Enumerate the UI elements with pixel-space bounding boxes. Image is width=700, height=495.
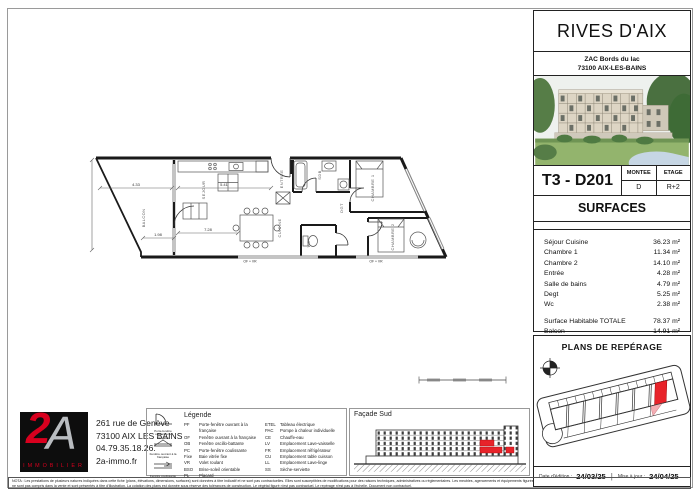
north-compass-icon: [540, 358, 560, 378]
facade-highlight-3: [506, 447, 514, 453]
dimension-labels: 4.33 5.41 1.98 7.28: [132, 182, 229, 237]
agency-logo: 2 A IMMOBILIER: [20, 412, 88, 472]
unit-row: T3 - D201 MONTEE ETAGE D R+2: [533, 165, 691, 196]
surface-row: Séjour Cuisine36.23 m²: [544, 238, 680, 248]
legend-symbol-pc: Fenêtre coulissante: [149, 457, 177, 478]
room-sdb: SDB: [317, 170, 322, 179]
room-sejour: SEJOUR: [201, 181, 206, 200]
facade-highlight-2: [480, 447, 502, 453]
reperage-title: PLANS DE REPÉRAGE: [534, 342, 690, 352]
surface-value: 5.25 m²: [657, 290, 680, 300]
facade-drawing: [352, 420, 528, 475]
montee-label: MONTEE: [622, 166, 657, 180]
etage-label: ETAGE: [657, 166, 691, 180]
surface-label: Wc: [544, 300, 554, 310]
window-labels: OF + VR OF + VR: [243, 260, 383, 264]
disclaimer-line2: ne sont pas compris dans la vente et son…: [12, 484, 687, 489]
surface-label: Entrée: [544, 269, 564, 279]
surfaces-title: SURFACES: [578, 201, 646, 215]
surface-row: Degt5.25 m²: [544, 290, 680, 300]
surface-label: Degt: [544, 290, 558, 300]
facade-highlight-1: [480, 440, 494, 446]
unit-code: T3 - D201: [534, 166, 622, 195]
surface-row: Wc2.38 m²: [544, 300, 680, 310]
dim-7-28: 7.28: [204, 227, 213, 232]
surface-row: Entrée4.28 m²: [544, 269, 680, 279]
unit-grid: MONTEE ETAGE D R+2: [622, 166, 690, 195]
project-address-box: ZAC Bords du lac 73100 AIX-LES-BAINS: [533, 51, 691, 76]
room-wc: WC: [307, 241, 311, 248]
room-balcon: BALCON: [141, 209, 146, 228]
surface-value: 4.79 m²: [657, 280, 680, 290]
room-chambre1: CHAMBRE 1: [370, 174, 375, 201]
surface-label: Chambre 1: [544, 248, 578, 258]
surface-value: 36.23 m²: [653, 238, 680, 248]
surface-total-row: Surface Habitable TOTALE78.37 m²: [544, 317, 680, 327]
legend-column-1: PFPorte-fenêtre ouvrant à la française O…: [184, 422, 262, 480]
surface-label: Séjour Cuisine: [544, 238, 588, 248]
balcony-walls: [96, 158, 174, 257]
surface-label: Chambre 2: [544, 259, 578, 269]
logo-caption: IMMOBILIER: [20, 463, 88, 469]
legend-label: Sèche-serviette: [280, 467, 310, 473]
surface-row: Chambre 111.34 m²: [544, 248, 680, 258]
window-label-1: OF + VR: [243, 260, 257, 264]
floor-plan: 4.33 5.41 1.98 7.28 OF + VR OF + VR BALC…: [88, 148, 460, 344]
footer-disclaimer: NOTA : Les prestations de plusieurs natu…: [8, 477, 691, 489]
montee-value: D: [622, 181, 657, 195]
legend-symbol-of: Fenêtre ouvrant à la française: [149, 435, 177, 460]
dim-4-33: 4.33: [132, 182, 141, 187]
room-dgt: DGT: [339, 203, 344, 213]
project-title-box: RIVES D'AIX: [533, 10, 691, 52]
project-title: RIVES D'AIX: [557, 21, 667, 41]
surface-value: 14.10 m²: [653, 259, 680, 269]
surface-total-label: Surface Habitable TOTALE: [544, 317, 626, 327]
room-chambre2: CHAMBRE 2: [390, 223, 395, 250]
surface-value: 11.34 m²: [654, 248, 680, 258]
reperage-site-plan: [534, 352, 690, 460]
legend-abbr: PF: [184, 422, 199, 435]
etage-value: R+2: [657, 181, 691, 195]
legend-column-2: ETELTableau électrique PACPompe à chaleu…: [265, 422, 347, 473]
legend-box: Porte-fenêtre ouvrant à la française Fen…: [146, 408, 347, 476]
window-label-2: OF + VR: [369, 260, 383, 264]
legend-item: SSSèche-serviette: [265, 467, 347, 473]
legend-title: Légende: [184, 412, 211, 419]
reperage-box: PLANS DE REPÉRAGE: [533, 335, 691, 467]
scale-bar: [415, 372, 510, 388]
closet: [276, 192, 290, 204]
legend-label: Porte-fenêtre ouvrant à la française: [199, 422, 262, 435]
surface-label: Salle de bains: [544, 280, 587, 290]
project-address-line1: ZAC Bords du lac: [534, 55, 690, 64]
dim-5-41: 5.41: [220, 182, 229, 187]
surfaces-table: Séjour Cuisine36.23 m² Chambre 111.34 m²…: [533, 229, 691, 332]
room-entree: ENTREE: [279, 170, 284, 189]
facade-box: Façade Sud: [349, 408, 530, 476]
surface-value: 2.38 m²: [657, 300, 680, 310]
legend-abbr: SS: [265, 467, 280, 473]
surface-row: Chambre 214.10 m²: [544, 259, 680, 269]
facade-title: Façade Sud: [354, 411, 392, 418]
building-render-box: [533, 75, 691, 166]
plan-sheet: 4.33 5.41 1.98 7.28 OF + VR OF + VR BALC…: [0, 0, 700, 495]
surface-row: Salle de bains4.79 m²: [544, 280, 680, 290]
surface-value: 4.28 m²: [657, 269, 680, 279]
logo-a: A: [46, 412, 77, 460]
legend-item: PFPorte-fenêtre ouvrant à la française: [184, 422, 262, 435]
room-cuisine: CUISINE: [277, 218, 282, 237]
building-render-image: [534, 76, 690, 165]
dim-1-98: 1.98: [154, 232, 163, 237]
surfaces-header: SURFACES: [533, 195, 691, 222]
project-address-line2: 73100 AIX-LES-BAINS: [534, 64, 690, 73]
surface-total-value: 78.37 m²: [653, 317, 680, 327]
